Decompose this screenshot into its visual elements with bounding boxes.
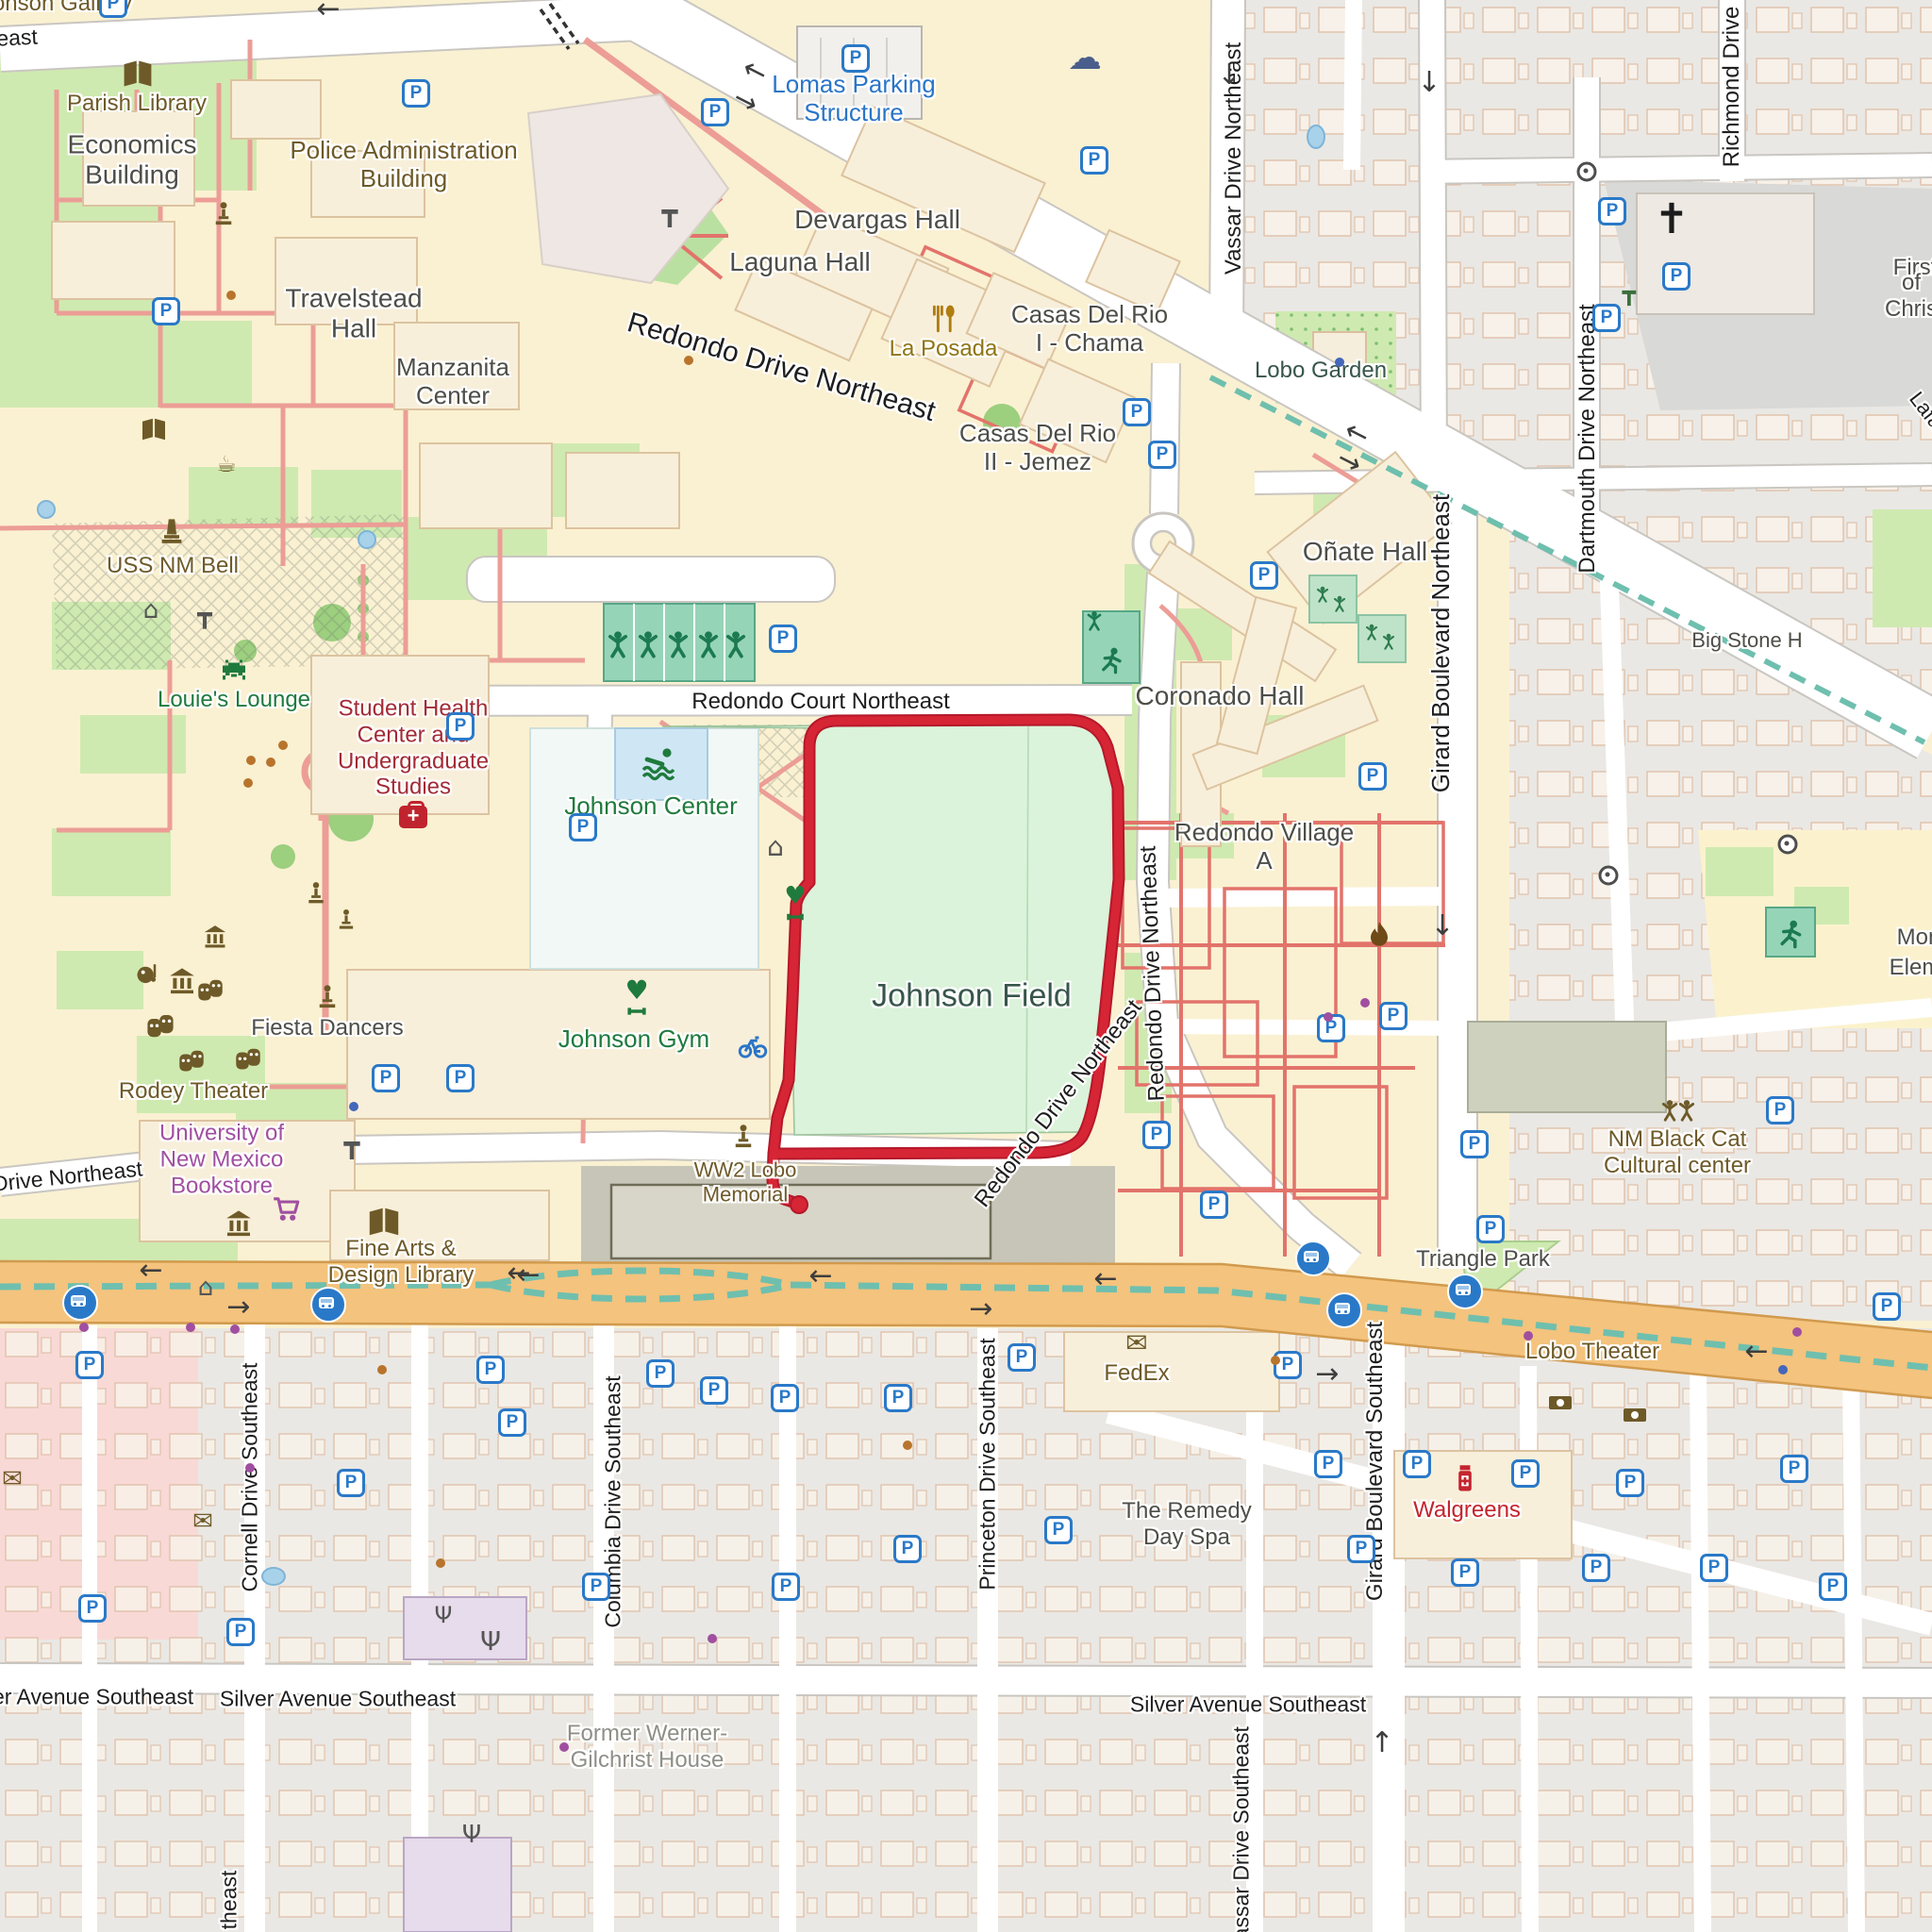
parking-icon: P xyxy=(1451,1558,1479,1587)
poi-dot-icon xyxy=(1778,1365,1788,1374)
label-bookstore: University of New Mexico Bookstore xyxy=(159,1120,284,1198)
parking-icon: P xyxy=(402,79,430,108)
poi-dot-icon xyxy=(230,1324,240,1334)
parking-icon: P xyxy=(1582,1554,1610,1582)
dumbbell-icon xyxy=(785,907,806,927)
parking-icon: P xyxy=(1148,441,1176,469)
parking-icon: P xyxy=(1592,304,1621,332)
theatre-masks-icon xyxy=(234,1045,262,1074)
pharmacy-icon xyxy=(1449,1461,1481,1493)
poi-dot-icon xyxy=(246,756,256,765)
label-nm-black-cat: NM Black Cat Cultural center xyxy=(1604,1126,1751,1179)
label-fedex: FedEx xyxy=(1104,1360,1169,1387)
label-la-posada: La Posada xyxy=(890,336,998,362)
statue-icon xyxy=(334,908,358,932)
tennis-player-icon xyxy=(634,630,662,658)
mini-roundabout-icon xyxy=(1778,835,1798,855)
label-richmond: Richmond Drive xyxy=(1719,7,1745,168)
label-economics: Economics Building xyxy=(68,130,197,192)
picnic-table-icon: ┳ xyxy=(662,199,678,225)
oneway-arrow-icon: → xyxy=(1315,1360,1339,1389)
bus-stop-icon xyxy=(1295,1241,1331,1276)
oneway-arrow-icon: ← xyxy=(139,1257,162,1285)
first-aid-icon: + xyxy=(399,806,427,828)
parking-icon: P xyxy=(884,1384,912,1412)
street-redondo-drive-ne-diagonal: Redondo Drive Northeast xyxy=(624,307,939,429)
parking-icon: P xyxy=(769,625,797,653)
oneway-arrow-icon: → xyxy=(1332,444,1366,480)
parking-icon: P xyxy=(78,1594,107,1623)
bus-stop-icon xyxy=(1326,1292,1362,1328)
parking-icon: P xyxy=(1873,1292,1901,1321)
bus-glyph xyxy=(1456,1284,1471,1295)
library-book-icon xyxy=(121,57,155,91)
church-cross-icon: ✝ xyxy=(1655,199,1690,241)
parking-icon: P xyxy=(75,1351,104,1379)
library-book-icon xyxy=(140,415,168,443)
poi-dot-icon xyxy=(559,1742,569,1752)
label-redondo-village: Redondo Village A xyxy=(1174,818,1354,874)
parking-icon: P xyxy=(99,0,127,18)
poi-dot-icon xyxy=(79,1323,89,1332)
shelter-icon: ⌂ xyxy=(767,834,784,860)
label-cornell: Cornell Drive Southeast xyxy=(238,1363,263,1592)
bus-glyph xyxy=(71,1295,86,1307)
label-princeton: Princeton Drive Southeast xyxy=(975,1338,1001,1590)
oneway-arrow-icon: ↓ xyxy=(1217,61,1241,90)
poi-dot-icon xyxy=(349,1102,358,1111)
parking-icon: P xyxy=(1347,1535,1375,1563)
parking-icon: P xyxy=(841,44,870,73)
poi-dot-icon xyxy=(1335,358,1344,367)
label-lobo-garden: Lobo Garden xyxy=(1255,358,1387,384)
label-dartmouth: Dartmouth Drive Northeast xyxy=(1574,304,1601,573)
picnic-table-icon: ┳ xyxy=(197,603,212,627)
label-parish-library: Parish Library xyxy=(67,91,207,117)
parking-icon: P xyxy=(226,1618,255,1646)
parking-icon: P xyxy=(1358,762,1387,791)
label-east-frag: east xyxy=(0,25,38,52)
label-vassar-se: Vassar Drive Southeast xyxy=(1229,1726,1255,1932)
label-louies: Louie's Lounge xyxy=(158,687,310,713)
parking-icon: P xyxy=(1314,1450,1342,1478)
label-big-stone: Big Stone H xyxy=(1691,628,1802,653)
label-redondo-court: Redondo Court Northeast xyxy=(691,689,950,715)
bus-glyph xyxy=(319,1297,334,1308)
poi-dot-icon xyxy=(1524,1331,1533,1341)
bicycle-repair-icon xyxy=(738,1030,768,1060)
arts-palette-icon xyxy=(135,960,161,987)
poi-dot-icon xyxy=(1271,1356,1280,1365)
shelter-icon: ⌂ xyxy=(198,1275,214,1300)
parking-icon: P xyxy=(476,1356,505,1384)
picnic-table-icon: ┳ xyxy=(1623,281,1636,304)
label-of-chris-frag: of Chris xyxy=(1885,270,1932,323)
label-travelstead: Travelstead Hall xyxy=(285,284,422,345)
parking-icon: P xyxy=(1379,1002,1407,1030)
memorial-statue-icon xyxy=(729,1123,758,1151)
oneway-arrow-icon: → xyxy=(728,84,762,120)
label-manzanita: Manzanita Center xyxy=(396,353,509,409)
poi-dot-icon xyxy=(1360,998,1370,1008)
restaurant-icon xyxy=(928,304,958,334)
parking-icon: P xyxy=(1200,1191,1228,1219)
swimmer-icon xyxy=(641,743,679,781)
museum-icon xyxy=(167,966,197,996)
poi-dot-icon xyxy=(1324,1012,1333,1022)
playground-icon xyxy=(1363,624,1380,641)
parking-icon: P xyxy=(771,1384,799,1412)
parking-icon: P xyxy=(1616,1469,1644,1497)
poi-dot-icon xyxy=(226,291,236,300)
parking-icon: P xyxy=(1598,197,1626,225)
label-ww2: WW2 Lobo Memorial xyxy=(694,1158,797,1206)
label-casas1: Casas Del Rio I - Chama xyxy=(1011,300,1168,357)
mini-roundabout-icon xyxy=(1599,866,1619,886)
label-remedy: The Remedy Day Spa xyxy=(1122,1498,1251,1551)
parking-icon: P xyxy=(700,1376,728,1405)
label-former-werner: Former Werner- Gilchrist House xyxy=(567,1721,727,1774)
parking-icon: P xyxy=(446,1064,475,1092)
oneway-arrow-icon: → xyxy=(969,1295,992,1324)
poi-dot-icon xyxy=(708,1634,717,1643)
playground-icon xyxy=(1331,595,1348,612)
tennis-player-icon xyxy=(604,630,632,658)
parking-icon: P xyxy=(1142,1121,1171,1149)
tennis-player-icon xyxy=(694,630,723,658)
parking-icon: P xyxy=(1511,1459,1540,1488)
street-redondo-drive-ne-east: Redondo Drive Northeast xyxy=(1135,845,1170,1102)
cloud-icon: ☁ xyxy=(1068,42,1102,75)
library-book-icon xyxy=(366,1204,402,1240)
parking-icon: P xyxy=(701,98,729,126)
parking-icon: P xyxy=(1700,1554,1728,1582)
parking-icon: P xyxy=(1780,1455,1808,1483)
parking-icon: P xyxy=(1460,1130,1489,1158)
poi-dot-icon xyxy=(684,356,693,365)
bus-stop-icon xyxy=(310,1287,346,1323)
parking-icon: P xyxy=(372,1064,400,1092)
parking-icon: P xyxy=(1008,1343,1036,1372)
theatre-masks-icon xyxy=(145,1011,175,1041)
map-overlay: Jonson GalleryeastParish LibraryEconomic… xyxy=(0,0,1932,1932)
oneway-arrow-icon: ← xyxy=(516,1261,540,1290)
parking-icon: P xyxy=(446,712,475,741)
parking-icon: P xyxy=(569,813,597,841)
oneway-arrow-icon: ← xyxy=(316,0,340,24)
runner-icon xyxy=(1775,919,1806,949)
label-uss-bell: USS NM Bell xyxy=(107,553,239,579)
fiesta-dancers-statue-icon xyxy=(313,983,341,1011)
parking-icon: P xyxy=(646,1359,675,1388)
map-canvas[interactable]: Jonson GalleryeastParish LibraryEconomic… xyxy=(0,0,1932,1932)
oneway-arrow-icon: ← xyxy=(808,1262,832,1291)
label-police-admin: Police Administration Building xyxy=(290,136,517,192)
label-o-drive: o Drive Northeast xyxy=(0,1156,143,1198)
playground-icon xyxy=(1314,586,1331,603)
parking-icon: P xyxy=(1403,1450,1431,1478)
label-lobo-theater: Lobo Theater xyxy=(1525,1339,1659,1365)
parking-icon: P xyxy=(498,1408,526,1437)
label-devargas: Devargas Hall xyxy=(794,205,960,235)
arcade-invader-icon xyxy=(220,656,248,684)
picnic-table-icon: ┳ xyxy=(344,1131,360,1158)
basketball-player-icon xyxy=(1097,646,1125,675)
parking-icon: P xyxy=(1250,561,1278,590)
bus-stop-icon xyxy=(62,1285,98,1321)
theatre-masks-icon xyxy=(196,976,225,1005)
poi-dot-icon xyxy=(186,1323,195,1332)
poi-dot-icon xyxy=(377,1365,387,1374)
poi-dot-icon xyxy=(1792,1327,1802,1337)
antenna-icon: Ψ xyxy=(435,1604,453,1626)
tennis-player-icon xyxy=(722,630,750,658)
label-elem-frag: Elem xyxy=(1890,955,1932,981)
bus-glyph xyxy=(1335,1303,1350,1314)
cafe-icon: ☕ xyxy=(216,453,237,475)
label-walgreens: Walgreens xyxy=(1413,1497,1521,1524)
label-lafa-frag: Lafa xyxy=(1905,387,1932,433)
label-fine-arts: Fine Arts & Design Library xyxy=(328,1236,475,1289)
parking-icon: P xyxy=(772,1573,800,1601)
parking-icon: P xyxy=(152,297,180,325)
fitness-heart-icon: ♥ xyxy=(784,884,806,908)
parking-icon: P xyxy=(1476,1215,1505,1243)
dumbbell-icon xyxy=(625,1000,648,1023)
poi-dot-icon xyxy=(266,758,275,767)
label-girard-ne: Girard Boulevard Northeast xyxy=(1426,494,1455,792)
poi-dot-icon xyxy=(903,1441,912,1450)
fedex-mail-icon: ✉ xyxy=(1125,1330,1147,1357)
label-coronado: Coronado Hall xyxy=(1136,681,1305,711)
oneway-arrow-icon: ← xyxy=(1093,1265,1117,1293)
parking-icon: P xyxy=(1274,1351,1302,1379)
parking-icon: P xyxy=(893,1535,922,1563)
label-rodey: Rodey Theater xyxy=(119,1078,268,1105)
community-centre-icon xyxy=(1675,1099,1698,1122)
label-lomas-parking: Lomas Parking Structure xyxy=(772,70,935,126)
poi-dot-icon xyxy=(243,778,253,788)
monument-icon xyxy=(157,517,187,547)
label-onate: Oñate Hall xyxy=(1303,537,1427,567)
mail-icon: ✉ xyxy=(192,1509,213,1534)
antenna-icon: Ψ xyxy=(480,1628,501,1655)
street-silver-ave-se-3: Silver Avenue Southeast xyxy=(1130,1692,1366,1718)
tennis-player-icon xyxy=(664,630,692,658)
atm-icon xyxy=(1624,1408,1646,1422)
label-johnson-field: Johnson Field xyxy=(872,977,1072,1014)
parking-icon: P xyxy=(582,1573,610,1601)
oneway-arrow-icon: ↓ xyxy=(1430,912,1454,941)
oneway-arrow-icon: → xyxy=(226,1293,250,1322)
poi-dot-icon xyxy=(245,1463,255,1473)
label-theast-frag: theast xyxy=(217,1871,242,1930)
mini-roundabout-icon xyxy=(1577,162,1597,182)
mail-icon: ✉ xyxy=(2,1467,23,1491)
parking-icon: P xyxy=(1662,262,1690,291)
parking-icon: P xyxy=(1044,1516,1073,1544)
poi-dot-icon xyxy=(436,1558,445,1568)
museum-icon xyxy=(202,924,228,950)
museum-icon xyxy=(224,1208,254,1239)
bus-glyph xyxy=(1304,1251,1319,1262)
statue-icon xyxy=(303,880,329,907)
poi-dot-icon xyxy=(278,741,288,750)
theatre-masks-icon xyxy=(177,1047,206,1075)
climbing-icon xyxy=(1084,610,1105,631)
parking-icon: P xyxy=(1819,1573,1847,1601)
street-silver-ave-se-1: Silver Avenue Southeast xyxy=(0,1685,193,1710)
label-johnson-gym: Johnson Gym xyxy=(558,1024,709,1053)
label-triangle-park: Triangle Park xyxy=(1416,1246,1550,1273)
oneway-arrow-icon: ← xyxy=(1744,1338,1768,1366)
label-laguna: Laguna Hall xyxy=(729,247,870,277)
oneway-arrow-icon: ↑ xyxy=(1370,1729,1393,1757)
parking-icon: P xyxy=(1080,146,1108,175)
shelter-icon: ⌂ xyxy=(143,598,159,623)
antenna-icon: Ψ xyxy=(462,1823,481,1847)
label-mon-frag: Mon xyxy=(1897,924,1932,951)
statue-icon xyxy=(209,200,238,228)
street-redondo-drive-ne-curve: Redondo Drive Northeast xyxy=(970,995,1148,1213)
parking-icon: P xyxy=(337,1469,365,1497)
playground-icon xyxy=(1380,633,1397,650)
street-silver-ave-se-2: Silver Avenue Southeast xyxy=(220,1687,456,1712)
atm-icon xyxy=(1549,1396,1572,1409)
parking-icon: P xyxy=(1123,398,1151,426)
bus-stop-icon xyxy=(1447,1274,1483,1309)
oneway-arrow-icon: ↓ xyxy=(1417,69,1441,97)
fireplace-icon xyxy=(1365,920,1393,948)
shopping-cart-icon xyxy=(271,1194,301,1224)
parking-icon: P xyxy=(1766,1096,1794,1124)
label-fiesta: Fiesta Dancers xyxy=(251,1015,403,1041)
label-casas2: Casas Del Rio II - Jemez xyxy=(959,419,1116,475)
